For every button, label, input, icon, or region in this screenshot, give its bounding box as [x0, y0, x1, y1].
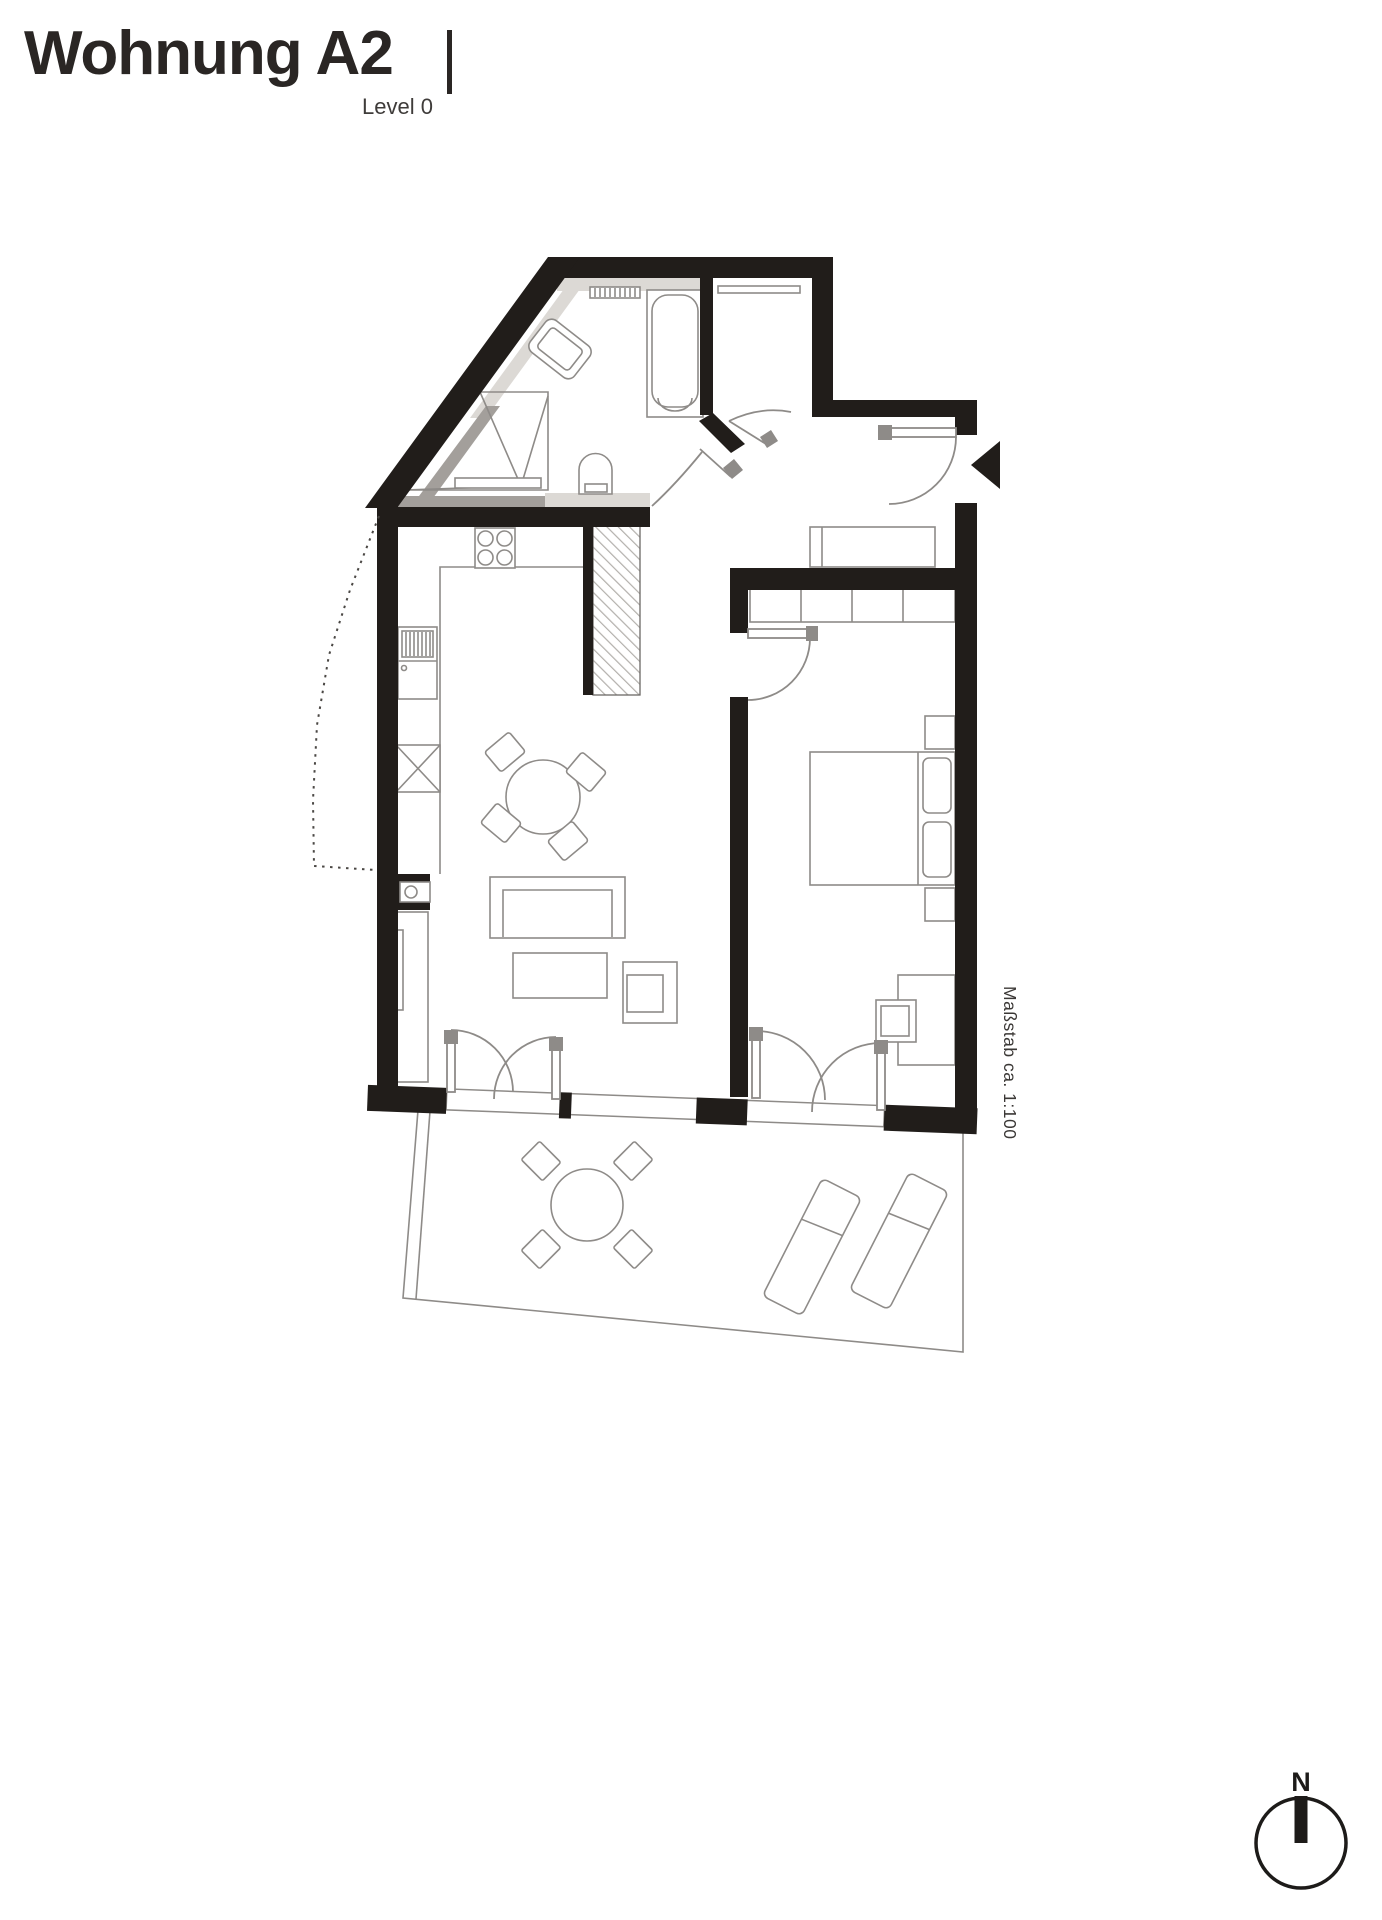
terrace-chair — [613, 1141, 653, 1181]
dining-chair — [484, 732, 525, 772]
scale-note: Maßstab ca. 1:100 — [1000, 986, 1020, 1139]
hallway — [810, 527, 935, 567]
hall-north-wall — [812, 400, 977, 417]
living-room — [480, 732, 677, 1023]
west-wall — [377, 505, 398, 1090]
storage-east-wall — [812, 257, 833, 408]
compass: N — [1256, 1767, 1346, 1888]
shower-tray — [455, 478, 541, 488]
entrance-arrow — [971, 441, 1000, 489]
entrance-door — [878, 425, 956, 504]
living-french-door — [444, 1030, 563, 1099]
bedroom — [750, 578, 955, 1065]
fridge — [398, 627, 437, 699]
property-line — [313, 516, 379, 870]
floor-plan-page: Wohnung A2 Level 0 — [0, 0, 1382, 1920]
compass-north-label: N — [1291, 1767, 1311, 1797]
bedroom-door — [748, 626, 818, 700]
chamfer-wall — [699, 413, 745, 453]
divider-wall-upper — [730, 568, 748, 633]
washbasin — [579, 454, 612, 494]
sun-lounger — [849, 1172, 948, 1310]
bathroom-south-wall — [390, 507, 650, 527]
desk-chair — [876, 1000, 916, 1042]
sofa — [490, 877, 625, 938]
south-wall-band — [367, 1085, 978, 1134]
bathroom-storage-wall — [700, 272, 713, 415]
compass-needle — [1295, 1796, 1308, 1843]
bedroom-french-door — [749, 1027, 888, 1112]
east-wall-stub — [955, 417, 977, 435]
divider-wall-lower — [730, 697, 748, 1097]
terrace-table — [551, 1169, 623, 1241]
towel-radiator — [590, 287, 640, 298]
sideboard — [810, 527, 935, 567]
coffee-table — [513, 953, 607, 998]
terrace-chair — [521, 1141, 561, 1181]
pillow — [923, 822, 951, 877]
stove — [475, 528, 515, 568]
terrace-chair — [613, 1229, 653, 1269]
terrace — [403, 1110, 963, 1352]
vanity-counter — [545, 493, 650, 508]
coat-rail — [718, 286, 800, 293]
sun-lounger — [762, 1178, 861, 1316]
nightstand — [925, 888, 955, 921]
washing-machine — [526, 316, 595, 382]
shaft-wall — [583, 517, 593, 695]
nightstand — [925, 716, 955, 749]
bedroom-north-wall — [730, 568, 955, 590]
floor-plan-drawing: Maßstab ca. 1:100 N — [0, 0, 1382, 1920]
pillow — [923, 758, 951, 813]
threshold — [446, 1089, 884, 1127]
double-bed — [810, 752, 955, 885]
bathroom-door — [652, 449, 743, 506]
north-wall — [548, 257, 833, 278]
terrace-chair — [521, 1229, 561, 1269]
terrace-edge-line — [416, 1111, 430, 1299]
armchair — [623, 962, 677, 1023]
storage-room — [718, 286, 800, 293]
east-wall — [955, 503, 977, 1118]
bathtub — [647, 290, 703, 417]
installation-shaft — [593, 517, 640, 695]
base-cabinet — [396, 745, 440, 792]
